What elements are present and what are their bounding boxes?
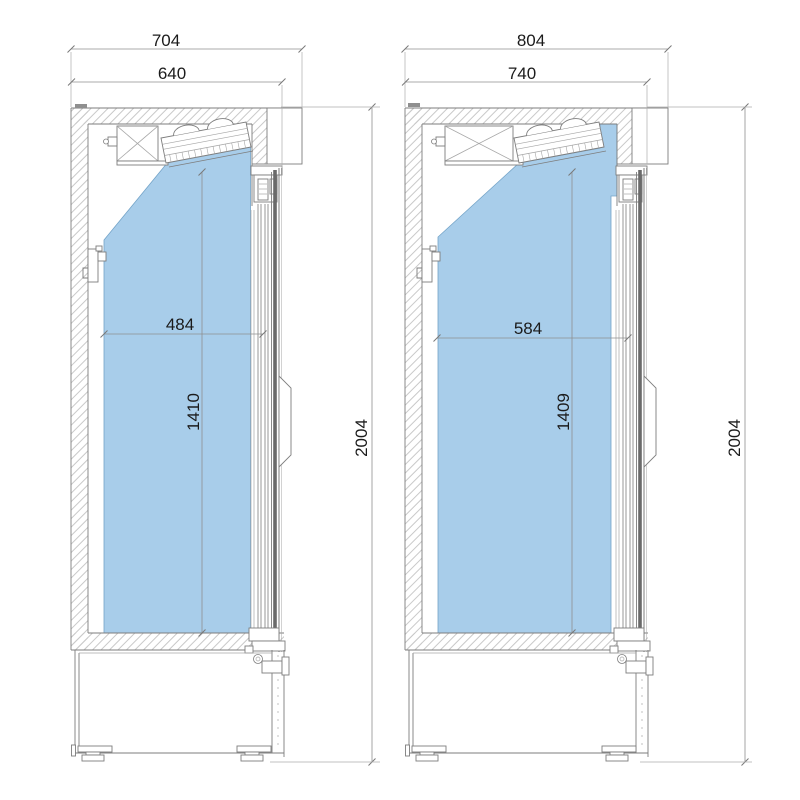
interior-volume — [438, 124, 617, 633]
machine-compartment — [406, 650, 654, 757]
machine-compartment — [72, 650, 290, 757]
overall-width-dimension — [68, 46, 306, 108]
interior-volume — [104, 147, 251, 633]
right-overall-width-label: 804 — [517, 31, 545, 50]
overall-width-dimension — [402, 46, 672, 108]
drawing-geometry — [68, 46, 753, 766]
right-interior-height-label: 1409 — [554, 393, 573, 431]
adjustable-foot — [602, 746, 636, 761]
right-overall-height-label: 2004 — [725, 419, 744, 457]
glass-door-section — [245, 166, 291, 653]
glass-door-section — [610, 166, 656, 653]
drawing-canvas: 704 640 484 1410 2004 804 740 584 1409 2… — [0, 0, 800, 800]
air-duct — [104, 126, 169, 165]
left-cabinet-width-label: 640 — [158, 64, 186, 83]
label-sticker — [75, 104, 87, 108]
door-canopy — [632, 108, 668, 164]
left-interior-width-label: 484 — [166, 315, 194, 334]
air-duct — [432, 126, 524, 165]
left-unit-drawing — [68, 46, 381, 766]
adjustable-foot — [237, 746, 271, 761]
right-unit-drawing — [402, 46, 753, 766]
right-cabinet-width-label: 740 — [508, 64, 536, 83]
left-overall-height-label: 2004 — [352, 419, 371, 457]
right-interior-width-label: 584 — [514, 319, 542, 338]
label-sticker — [408, 103, 420, 107]
dimension-drawing: 704 640 484 1410 2004 804 740 584 1409 2… — [0, 0, 800, 800]
left-interior-height-label: 1410 — [184, 393, 203, 431]
door-canopy — [267, 108, 302, 164]
left-overall-width-label: 704 — [152, 31, 180, 50]
adjustable-foot — [78, 746, 112, 761]
adjustable-foot — [412, 746, 446, 761]
